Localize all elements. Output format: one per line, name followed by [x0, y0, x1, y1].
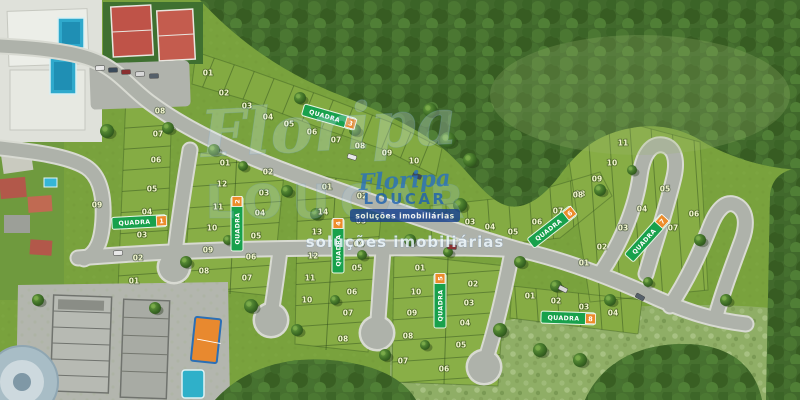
watermark-script-text: Floripa: [197, 84, 459, 172]
pool-deep-end: [54, 62, 72, 90]
car-icon: [113, 250, 122, 255]
lot-number: 05: [508, 228, 518, 237]
quadra-label-text: QUADRA: [437, 290, 444, 322]
lot-number: 08: [155, 107, 165, 116]
lot-number: 02: [551, 297, 561, 306]
lot-number: 01: [525, 292, 535, 301]
lot-number: 08: [403, 332, 413, 341]
watermark-tagline-text: soluções imobiliárias: [306, 233, 505, 251]
lot-number: 03: [464, 299, 474, 308]
lot-number: 05: [352, 264, 362, 273]
lot-number: 05: [251, 232, 261, 241]
lot-number: 09: [92, 201, 102, 210]
lot-number: 02: [597, 243, 607, 252]
lot-number: 01: [415, 264, 425, 273]
lot-number: 10: [607, 159, 617, 168]
lot-number: 09: [592, 175, 602, 184]
lot-number: 06: [151, 156, 161, 165]
lot-number: 08: [573, 191, 583, 200]
pool: [182, 370, 204, 398]
lot-number: 04: [608, 309, 618, 318]
lot-number: 06: [689, 210, 699, 219]
lot-number: 06: [347, 288, 357, 297]
sports-court-orange: [191, 317, 221, 363]
lot-number: 06: [532, 218, 542, 227]
watermark-logo: Floripa LOUCAR soluções imobiliárias: [350, 165, 460, 222]
quadra-label: QUADRA8: [541, 311, 596, 325]
lot-number: 07: [153, 130, 163, 139]
pool-deep-end: [62, 22, 80, 44]
lot-number: 02: [468, 280, 478, 289]
warehouse-building: [120, 299, 169, 399]
lot-number: 04: [460, 319, 470, 328]
lot-number: 03: [618, 224, 628, 233]
map-svg: 0102030405060708091008070605040302010901…: [0, 0, 800, 400]
lot-number: 05: [147, 185, 157, 194]
lot-number: 04: [485, 223, 495, 232]
lot-number: 06: [246, 253, 256, 262]
lot-number: 07: [343, 309, 353, 318]
lot-number: 07: [242, 274, 252, 283]
quadra-label-text: QUADRA: [547, 315, 579, 323]
lot-number: 10: [302, 296, 312, 305]
car-icon: [135, 72, 144, 77]
lot-number: 01: [129, 277, 139, 286]
lot-number: 08: [199, 267, 209, 276]
lot-number: 05: [660, 185, 670, 194]
lot-number: 01: [579, 259, 589, 268]
lot-number: 07: [398, 357, 408, 366]
lot-number: 10: [411, 288, 421, 297]
lot-number: 04: [637, 205, 647, 214]
lot-number: 12: [308, 252, 318, 261]
cul-de-sac: [468, 351, 500, 383]
quadra-label: QUADRA5: [434, 274, 446, 329]
lot-number: 01: [203, 69, 213, 78]
logo-tagline-text: soluções imobiliárias: [355, 212, 454, 221]
quadra-number: 5: [436, 276, 444, 281]
lot-number: 03: [579, 303, 589, 312]
lot-number: 09: [407, 309, 417, 318]
lot-number: 06: [439, 365, 449, 374]
quadra-number: 8: [588, 315, 593, 323]
lot-number: 07: [668, 224, 678, 233]
lot-number: 02: [133, 254, 143, 263]
car-icon: [121, 70, 130, 75]
lot-number: 08: [338, 335, 348, 344]
car-icon: [149, 74, 158, 79]
lot-number: 11: [305, 274, 315, 283]
quadra-label: QUADRA1: [112, 215, 167, 230]
small-pool: [44, 178, 57, 187]
lot-number: 11: [618, 139, 628, 148]
subdivision-masterplan-image: 0102030405060708091008070605040302010901…: [0, 0, 800, 400]
lot-number: 09: [203, 246, 213, 255]
car-icon: [108, 68, 117, 73]
lot-number: 03: [137, 231, 147, 240]
car-icon: [95, 66, 104, 71]
logo-brand-text: LOUCAR: [363, 190, 446, 208]
cul-de-sac: [361, 317, 393, 349]
warehouse-building: [50, 295, 111, 393]
lot-number: 05: [456, 341, 466, 350]
